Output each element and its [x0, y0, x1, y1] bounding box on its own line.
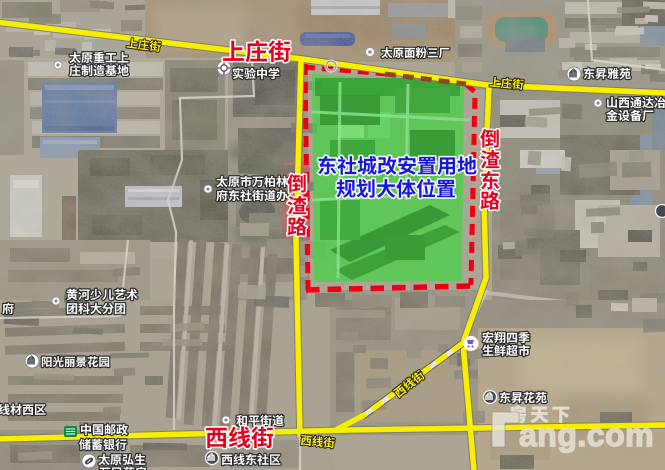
- svg-text:路: 路: [287, 211, 307, 240]
- svg-text:规划大体位置: 规划大体位置: [336, 173, 456, 202]
- svg-text:ang.com: ang.com: [519, 417, 654, 453]
- svg-text:线材西区: 线材西区: [0, 401, 46, 418]
- svg-text:实验中学: 实验中学: [232, 65, 280, 82]
- svg-text:太原面粉三厂: 太原面粉三厂: [381, 45, 450, 61]
- svg-text:路: 路: [480, 185, 500, 214]
- svg-text:阳光丽景花园: 阳光丽景花园: [41, 354, 110, 370]
- svg-text:西线东社区: 西线东社区: [221, 451, 281, 468]
- svg-text:府东社街道办: 府东社街道办: [216, 187, 288, 204]
- svg-text:西线街: 西线街: [205, 419, 274, 453]
- svg-text:上庄街: 上庄街: [489, 74, 525, 93]
- svg-text:金设备厂: 金设备厂: [606, 107, 654, 124]
- svg-text:上庄街: 上庄街: [222, 33, 291, 67]
- svg-text:团科大分团: 团科大分团: [66, 300, 126, 317]
- svg-text:万民药房: 万民药房: [99, 464, 147, 470]
- svg-text:府: 府: [2, 300, 14, 317]
- svg-text:东昇雅苑: 东昇雅苑: [583, 65, 631, 82]
- svg-text:生鲜超市: 生鲜超市: [482, 342, 530, 359]
- svg-text:庄制造基地: 庄制造基地: [69, 62, 129, 79]
